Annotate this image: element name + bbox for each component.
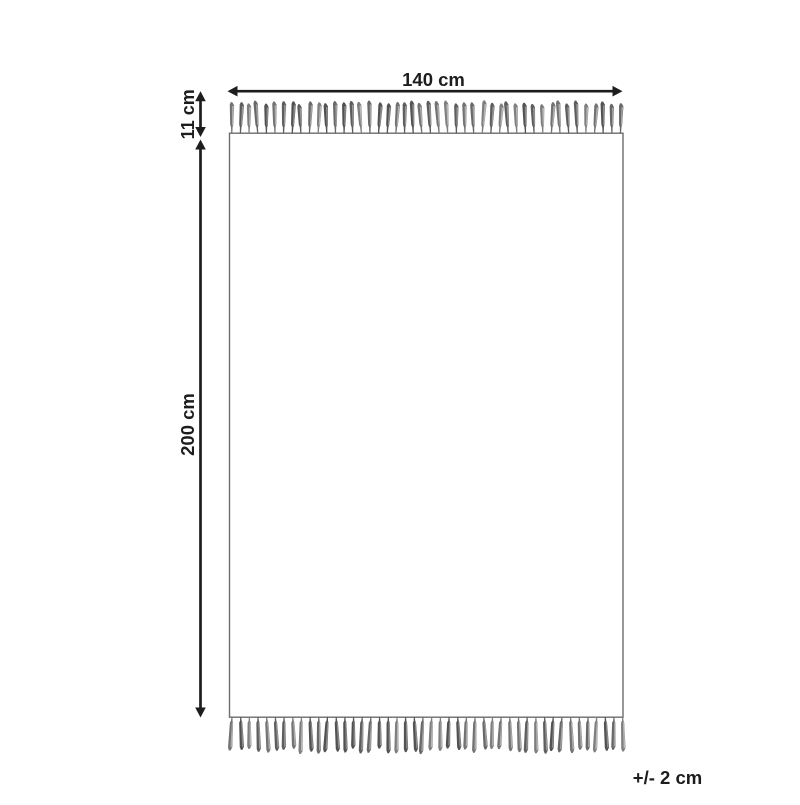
- svg-text:+/- 2 cm: +/- 2 cm: [633, 767, 702, 788]
- svg-text:200 cm: 200 cm: [177, 393, 198, 456]
- svg-text:140 cm: 140 cm: [402, 69, 465, 90]
- svg-text:11 cm: 11 cm: [178, 89, 198, 139]
